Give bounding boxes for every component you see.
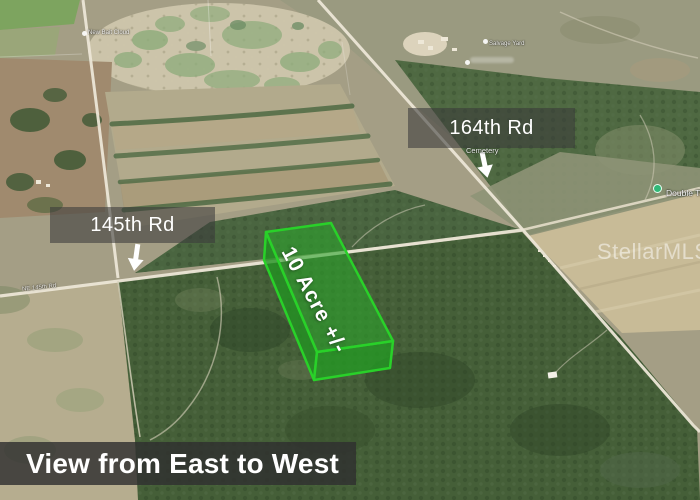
map-pin-icon: [653, 184, 662, 193]
poi-label-topleft: New Bait Cloud: [88, 30, 129, 36]
satellite-photo: New Bait Cloud Salvage Yard Cemetery Dou…: [0, 0, 700, 500]
mls-watermark: StellarMLS: [597, 239, 700, 265]
poi-label-double-ta: Double Ta: [666, 188, 700, 198]
view-caption-text: View from East to West: [26, 448, 339, 480]
poi-marker-icon: [82, 31, 87, 36]
road-label-145th-text: 145th Rd: [90, 214, 174, 237]
road-label-145th: 145th Rd: [50, 207, 215, 243]
poi-label-blurred: [470, 57, 514, 63]
poi-label-salvage-yard: Salvage Yard: [489, 41, 524, 47]
terrain-map: [0, 0, 700, 500]
view-caption: View from East to West: [0, 442, 356, 485]
road-label-164th-text: 164th Rd: [449, 117, 533, 140]
road-label-164th: 164th Rd: [408, 108, 575, 148]
poi-marker-icon: [483, 39, 488, 44]
